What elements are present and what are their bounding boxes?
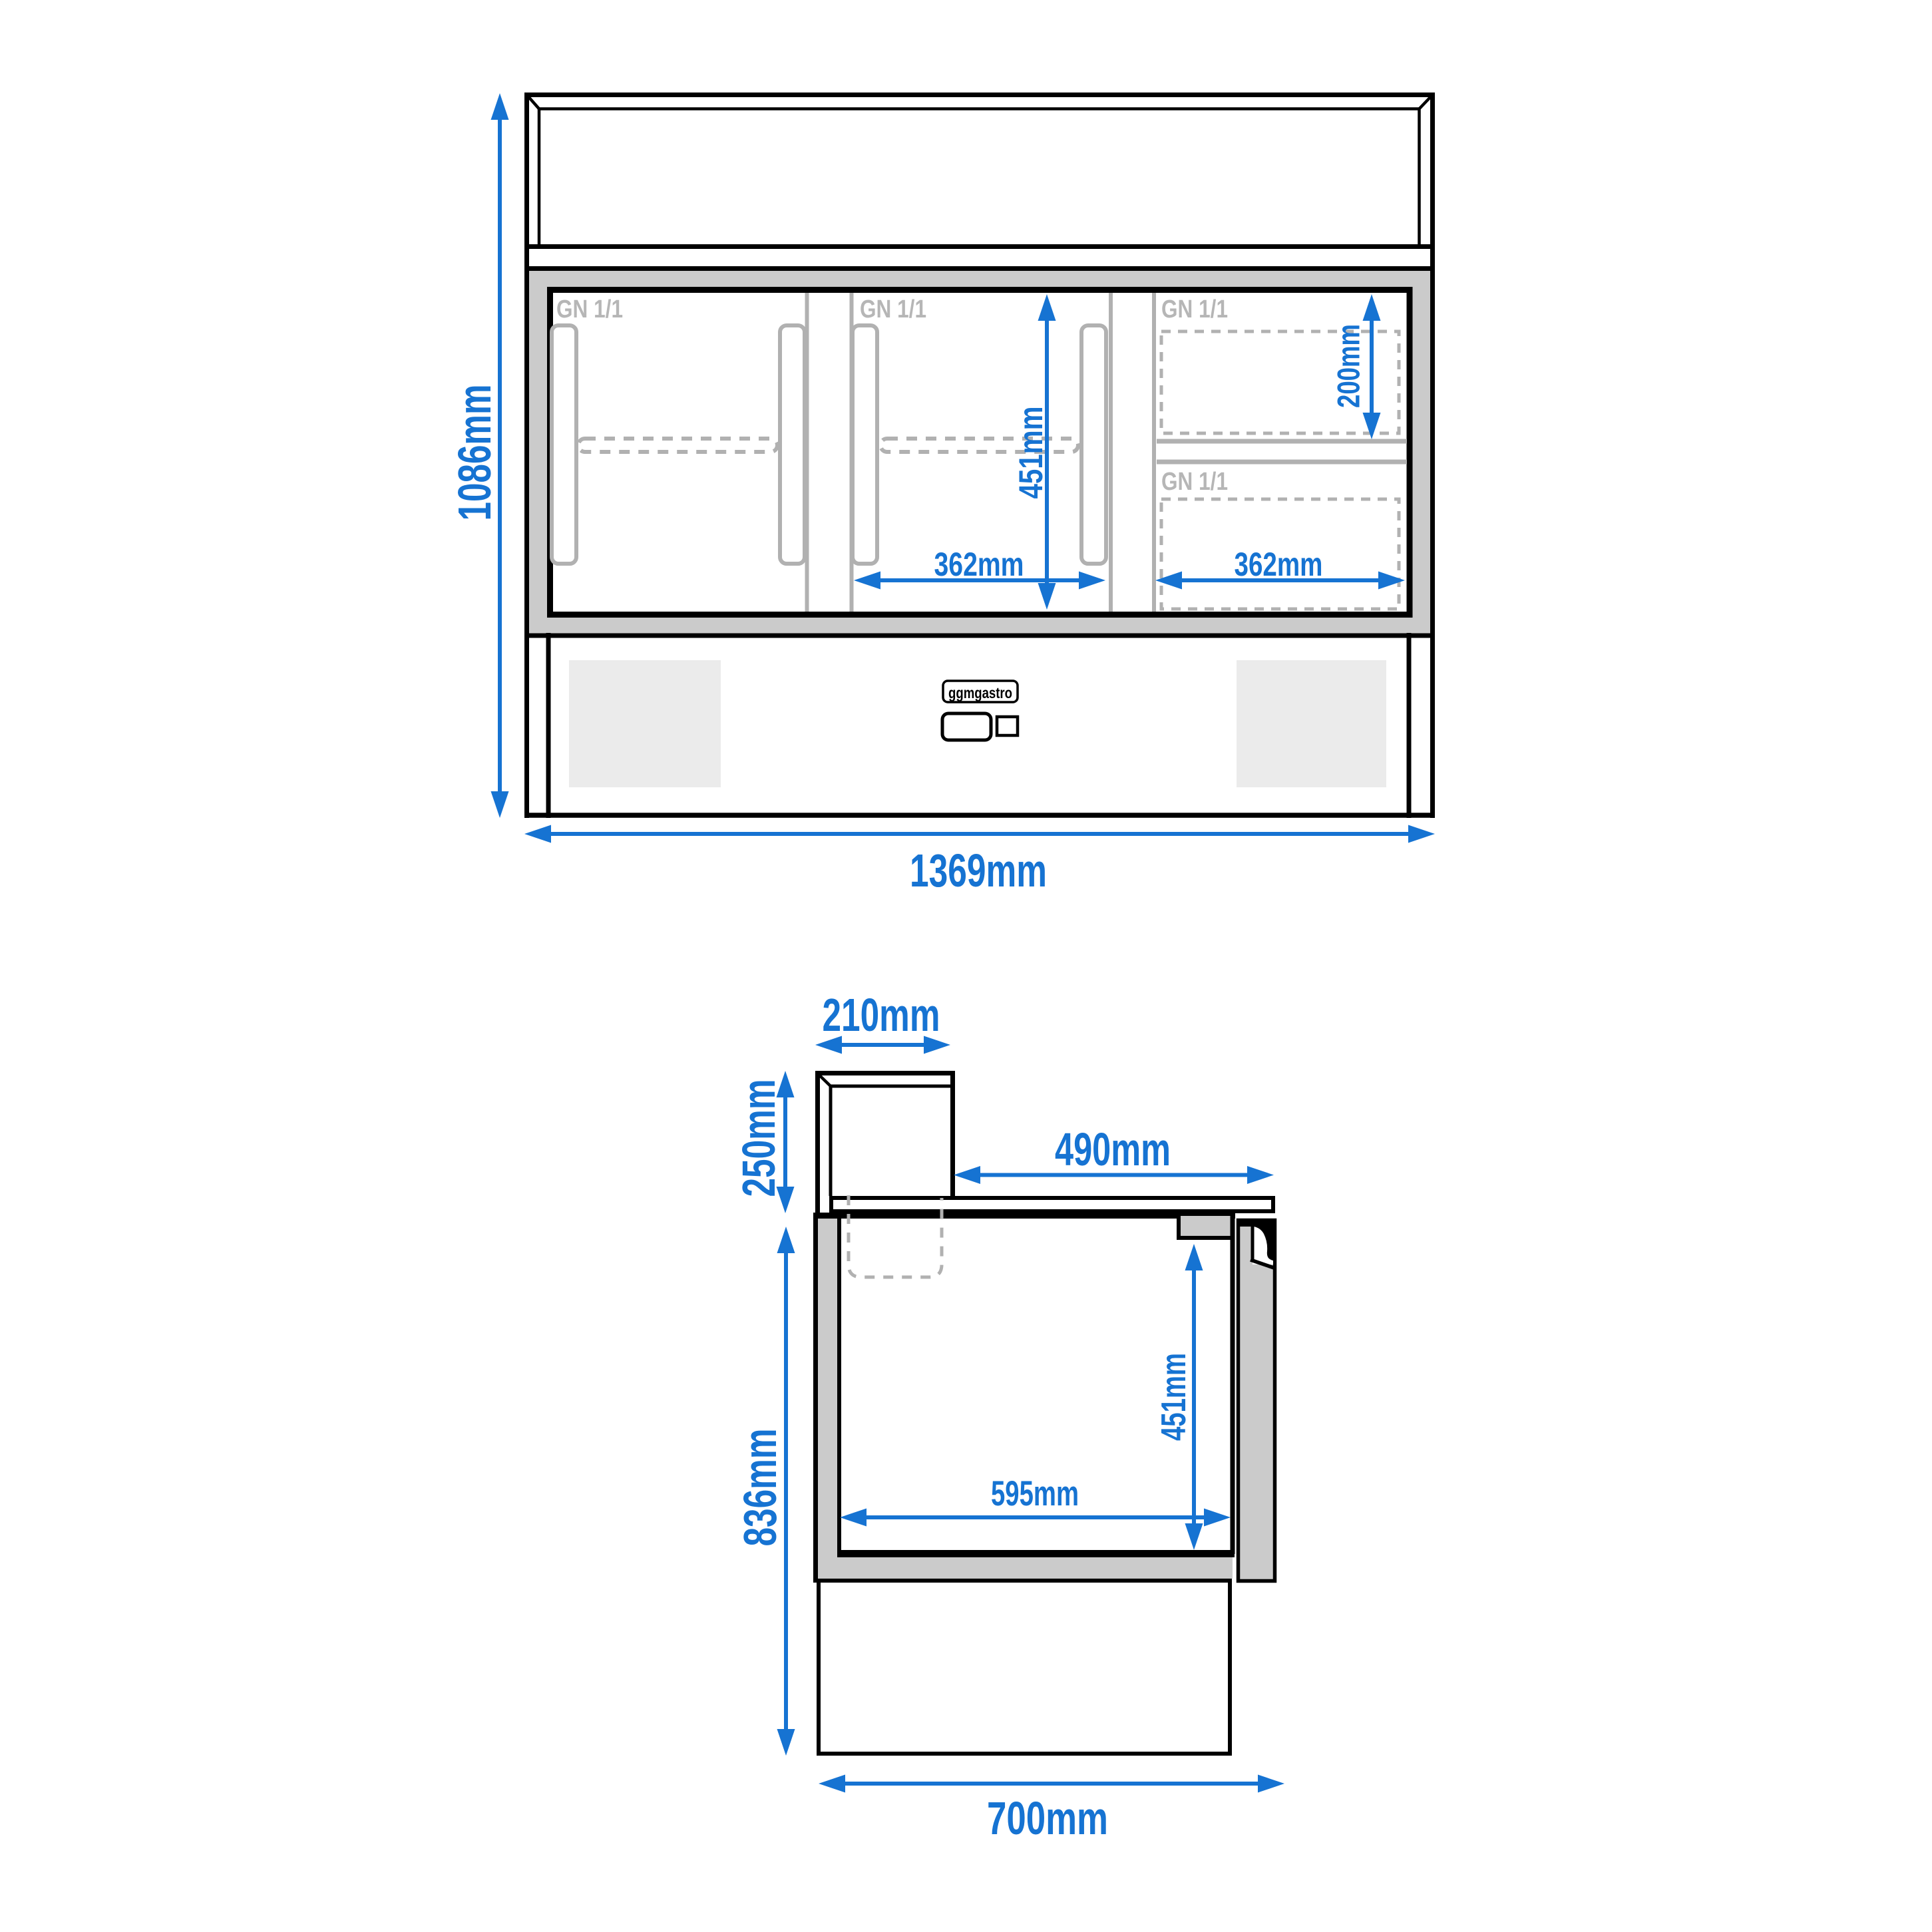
svg-text:836mm: 836mm xyxy=(734,1429,786,1547)
svg-text:1369mm: 1369mm xyxy=(910,845,1047,896)
svg-text:200mm: 200mm xyxy=(1331,324,1366,408)
svg-text:451mm: 451mm xyxy=(1012,407,1050,499)
svg-text:GN 1/1: GN 1/1 xyxy=(1161,295,1228,323)
svg-text:GN 1/1: GN 1/1 xyxy=(556,295,623,323)
svg-text:1086mm: 1086mm xyxy=(449,385,500,521)
svg-text:250mm: 250mm xyxy=(733,1079,785,1197)
svg-text:210mm: 210mm xyxy=(823,989,940,1041)
svg-text:GN 1/1: GN 1/1 xyxy=(1161,468,1228,496)
svg-text:362mm: 362mm xyxy=(934,546,1024,583)
svg-text:362mm: 362mm xyxy=(1235,546,1323,583)
svg-text:595mm: 595mm xyxy=(991,1474,1079,1513)
svg-text:GN 1/1: GN 1/1 xyxy=(860,295,926,323)
svg-text:451mm: 451mm xyxy=(1155,1353,1193,1441)
svg-text:700mm: 700mm xyxy=(987,1792,1108,1844)
svg-text:490mm: 490mm xyxy=(1055,1123,1171,1175)
svg-text:ggmgastro: ggmgastro xyxy=(948,684,1012,701)
